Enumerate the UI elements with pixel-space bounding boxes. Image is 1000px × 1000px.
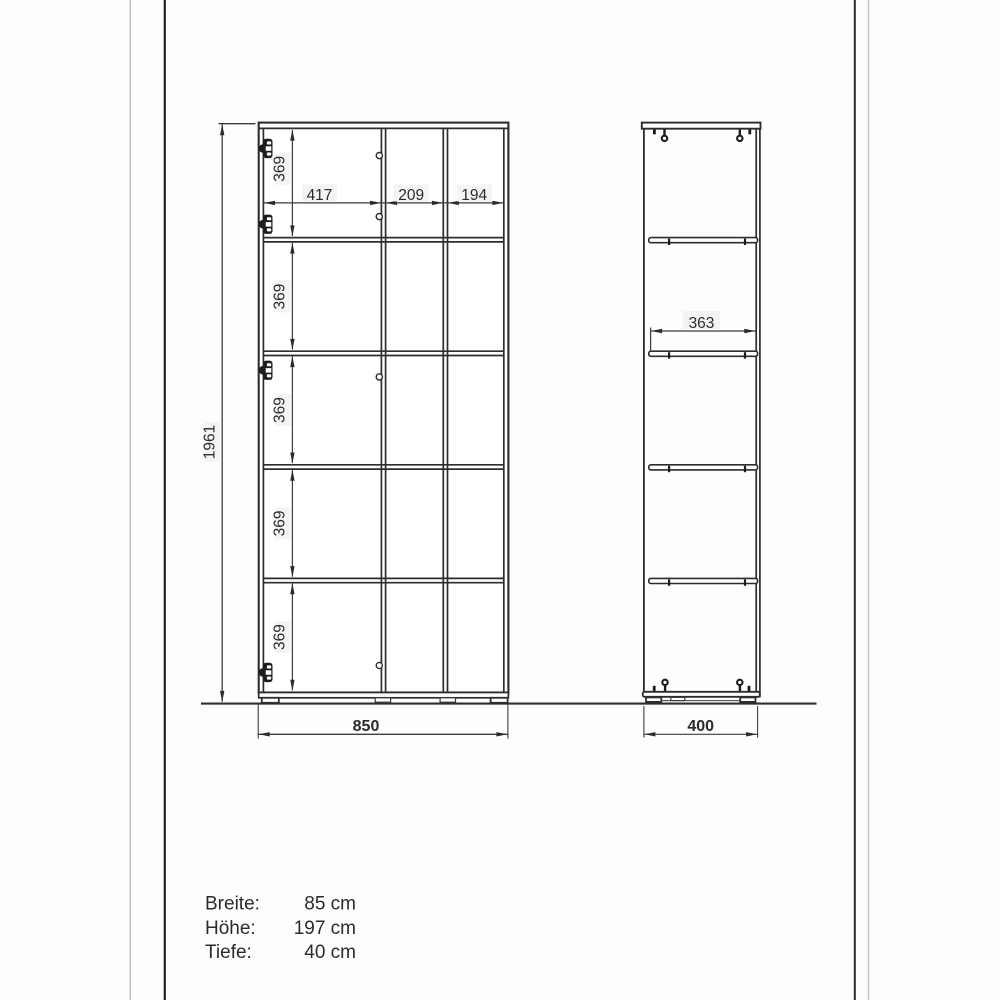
svg-text:Breite:: Breite: bbox=[205, 894, 260, 915]
svg-text:209: 209 bbox=[398, 187, 424, 204]
svg-text:400: 400 bbox=[687, 718, 714, 735]
svg-text:85 cm: 85 cm bbox=[304, 894, 356, 915]
svg-text:363: 363 bbox=[689, 315, 715, 332]
svg-text:850: 850 bbox=[353, 718, 380, 735]
svg-text:369: 369 bbox=[272, 156, 289, 182]
svg-text:Tiefe:: Tiefe: bbox=[205, 942, 252, 963]
svg-text:40 cm: 40 cm bbox=[304, 942, 356, 963]
svg-text:369: 369 bbox=[272, 397, 289, 423]
svg-text:Höhe:: Höhe: bbox=[205, 918, 256, 939]
svg-text:369: 369 bbox=[272, 624, 289, 650]
svg-text:197 cm: 197 cm bbox=[294, 918, 356, 939]
svg-text:1961: 1961 bbox=[202, 425, 219, 459]
svg-text:369: 369 bbox=[272, 284, 289, 310]
svg-text:417: 417 bbox=[307, 187, 333, 204]
svg-text:194: 194 bbox=[461, 187, 487, 204]
svg-text:369: 369 bbox=[272, 510, 289, 536]
